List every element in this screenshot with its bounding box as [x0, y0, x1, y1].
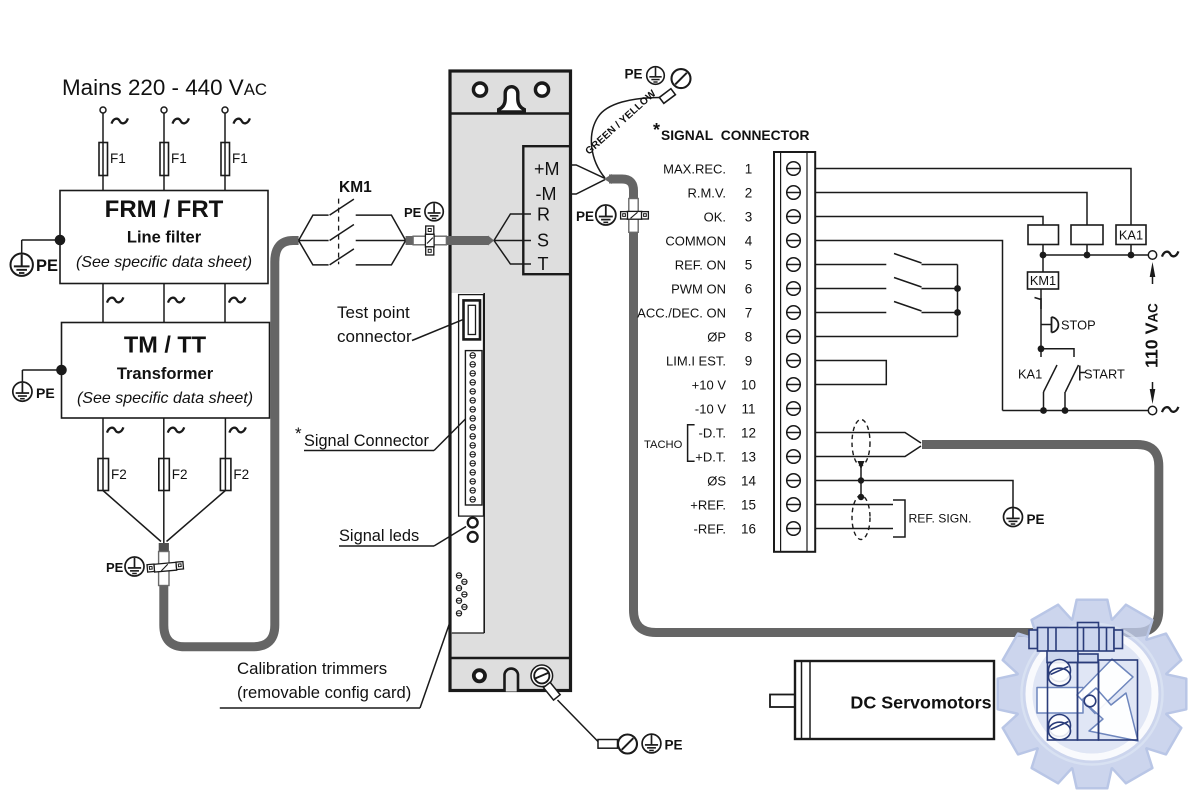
svg-text:PE: PE	[36, 385, 55, 401]
svg-text:5: 5	[745, 257, 753, 272]
svg-text:PE: PE	[36, 257, 58, 275]
svg-text:12: 12	[741, 425, 756, 440]
svg-text:1: 1	[745, 161, 753, 176]
svg-text:PE: PE	[1027, 512, 1045, 527]
svg-text:KM1: KM1	[339, 179, 372, 196]
svg-text:(See specific data sheet): (See specific data sheet)	[76, 254, 252, 271]
svg-text:+D.T.: +D.T.	[695, 449, 726, 464]
svg-text:F2: F2	[233, 467, 249, 482]
svg-text:(removable config card): (removable config card)	[237, 683, 411, 702]
svg-text:Test point: Test point	[337, 303, 410, 322]
svg-text:8: 8	[745, 329, 753, 344]
svg-text:KM1: KM1	[1030, 273, 1056, 288]
svg-text:-D.T.: -D.T.	[699, 425, 726, 440]
svg-text:Signal Connector: Signal Connector	[304, 432, 429, 450]
svg-text:Signal leds: Signal leds	[339, 527, 419, 545]
svg-text:ACC./DEC. ON: ACC./DEC. ON	[637, 305, 726, 320]
svg-text:F2: F2	[111, 467, 127, 482]
svg-text:+10 V: +10 V	[692, 377, 727, 392]
svg-text:-M: -M	[536, 184, 557, 204]
svg-text:DC Servomotors: DC Servomotors	[850, 693, 991, 713]
svg-text:REF. SIGN.: REF. SIGN.	[909, 512, 972, 526]
svg-text:PWM ON: PWM ON	[671, 281, 726, 296]
svg-text:REF. ON: REF. ON	[675, 257, 726, 272]
svg-text:6: 6	[745, 281, 753, 296]
svg-text:TM / TT: TM / TT	[124, 332, 207, 358]
svg-text:+REF.: +REF.	[690, 497, 726, 512]
svg-text:PE: PE	[576, 209, 594, 224]
svg-text:ØS: ØS	[707, 473, 726, 488]
svg-text:Transformer: Transformer	[117, 365, 214, 383]
svg-text:(See specific data sheet): (See specific data sheet)	[77, 390, 253, 407]
svg-text:PE: PE	[404, 205, 422, 220]
svg-text:LIM.I EST.: LIM.I EST.	[666, 353, 726, 368]
svg-text:PE: PE	[625, 67, 643, 82]
svg-text:OK.: OK.	[704, 209, 726, 224]
svg-text:F1: F1	[110, 151, 126, 166]
svg-text:16: 16	[741, 521, 756, 536]
svg-text:F2: F2	[172, 467, 188, 482]
svg-text:7: 7	[745, 305, 753, 320]
svg-text:R.M.V.: R.M.V.	[687, 185, 726, 200]
svg-text:TACHO: TACHO	[644, 439, 683, 451]
svg-text:*: *	[653, 120, 660, 140]
svg-text:14: 14	[741, 473, 757, 488]
svg-text:MAX.REC.: MAX.REC.	[663, 161, 726, 176]
svg-text:Mains 220 - 440 VAC: Mains 220 - 440 VAC	[62, 75, 267, 100]
svg-text:R: R	[537, 205, 550, 225]
svg-text:SIGNAL CONNECTOR: SIGNAL CONNECTOR	[661, 128, 809, 143]
svg-text:Calibration trimmers: Calibration trimmers	[237, 659, 387, 678]
svg-text:S: S	[537, 231, 549, 251]
svg-text:-REF.: -REF.	[694, 521, 727, 536]
svg-text:F1: F1	[232, 151, 248, 166]
svg-text:connector: connector	[337, 327, 412, 346]
svg-text:FRM / FRT: FRM / FRT	[105, 196, 224, 223]
svg-text:+M: +M	[534, 159, 560, 179]
svg-text:COMMON: COMMON	[665, 233, 726, 248]
svg-text:3: 3	[745, 209, 753, 224]
svg-text:STOP: STOP	[1061, 318, 1096, 333]
svg-text:13: 13	[741, 449, 756, 464]
svg-text:PE: PE	[106, 560, 124, 575]
svg-text:ØP: ØP	[707, 329, 726, 344]
svg-text:-10 V: -10 V	[695, 401, 726, 416]
svg-text:9: 9	[745, 353, 753, 368]
svg-text:15: 15	[741, 497, 756, 512]
svg-text:Line filter: Line filter	[127, 229, 202, 247]
svg-text:KA1: KA1	[1018, 367, 1042, 382]
svg-text:11: 11	[741, 401, 755, 416]
svg-text:START: START	[1084, 367, 1125, 382]
svg-text:T: T	[538, 254, 549, 274]
svg-text:PE: PE	[665, 738, 683, 753]
svg-text:KA1: KA1	[1119, 228, 1143, 243]
svg-text:10: 10	[741, 377, 756, 392]
svg-text:4: 4	[745, 233, 753, 248]
svg-text:*: *	[295, 424, 302, 443]
svg-text:2: 2	[745, 185, 753, 200]
svg-text:F1: F1	[171, 151, 187, 166]
